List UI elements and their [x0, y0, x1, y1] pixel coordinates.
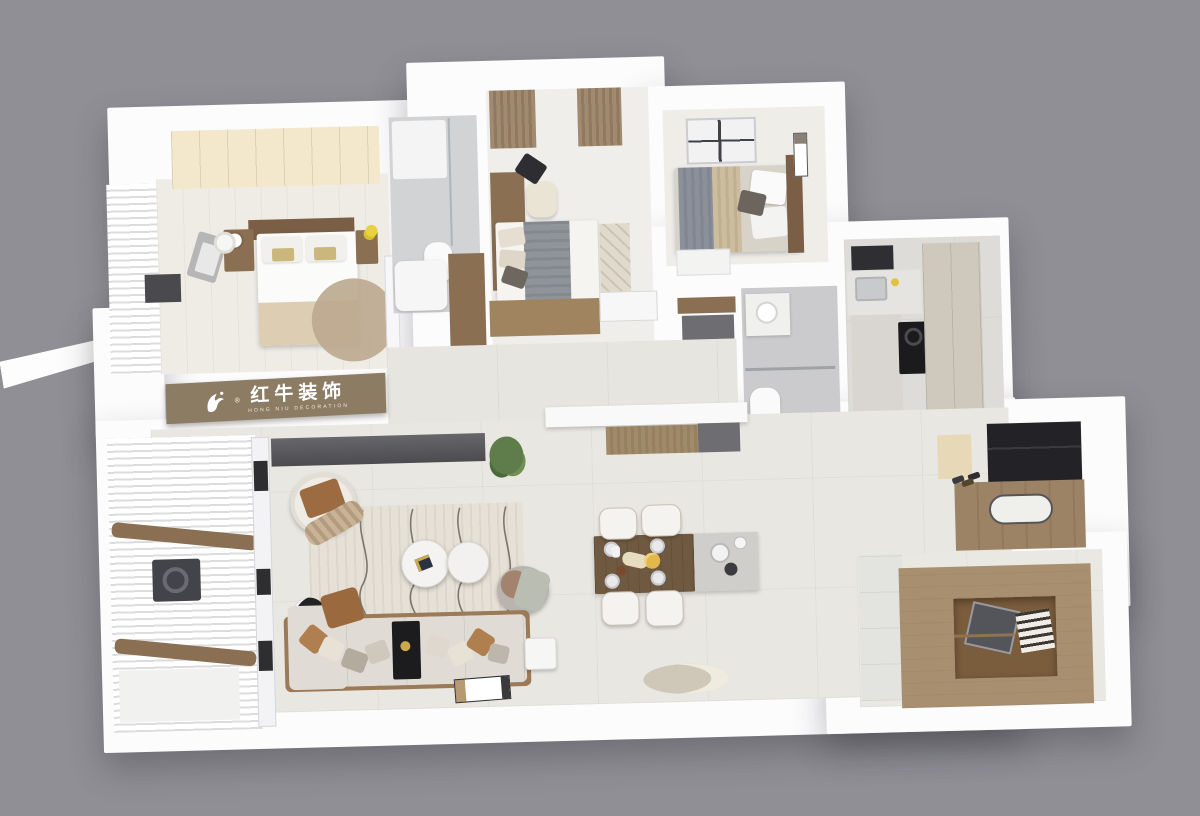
floorplan-render: ® 红牛装饰 HONG NIU DECORATION — [0, 0, 1200, 816]
bedroom2-curtain-right — [577, 87, 623, 146]
kitchen-sink — [855, 276, 888, 301]
master-pillow-gold-left — [272, 248, 294, 262]
render-background: { "scene": { "description": "3D bird's-e… — [0, 0, 1200, 800]
mid-closet-shelf — [677, 296, 735, 314]
entry-cream-cabinet — [937, 434, 972, 479]
bedroom2-curtain-left — [489, 90, 537, 149]
wall-console-brown-panel — [606, 424, 699, 454]
balcony-lower-cabinet — [119, 668, 240, 723]
bedroom2-chair — [526, 181, 557, 218]
bedroom3-dresser — [676, 249, 731, 276]
kitchen-tall-cabinets — [922, 242, 985, 425]
bedroom2-window-sill — [599, 290, 658, 322]
entry-oval-mat — [989, 493, 1054, 525]
tv-screen — [271, 433, 486, 467]
master-wardrobe — [171, 126, 380, 189]
master-pillow-gold-right — [314, 247, 336, 261]
bedroom2-runner-rug — [599, 223, 631, 298]
dining-chair-top-left — [599, 507, 638, 540]
dining-chair-bottom-left — [601, 591, 640, 626]
hongniu-bull-icon — [202, 388, 227, 415]
dining-chair-top-right — [641, 504, 682, 537]
partition-dark-slat-1 — [253, 461, 268, 491]
master-tub-counter — [394, 260, 447, 311]
floorplan-scene: ® 红牛装饰 HONG NIU DECORATION — [0, 0, 1200, 800]
registered-mark: ® — [235, 397, 240, 404]
partition-dark-slat-3 — [258, 641, 273, 671]
bedroom2-low-cabinet — [489, 298, 600, 337]
bedroom3-wall-art — [793, 132, 808, 176]
study-books — [1015, 608, 1055, 653]
wall-console-gray-panel — [698, 422, 741, 452]
floor-artwork — [454, 675, 512, 703]
dining-jug — [612, 546, 620, 558]
kitchen-range-hood — [851, 245, 894, 270]
partition-dark-slat-2 — [256, 569, 271, 595]
bedroom3-ceiling-window — [686, 117, 757, 165]
master-shower-tray — [392, 120, 447, 179]
master-window-frame — [145, 274, 182, 303]
sofa-side-table — [524, 637, 557, 670]
dining-sideboard — [694, 532, 759, 592]
dining-chair-bottom-right — [645, 590, 684, 627]
bedroom3-blanket-gray — [678, 167, 714, 254]
watermark-brand-cn: 红牛装饰 — [250, 381, 346, 405]
